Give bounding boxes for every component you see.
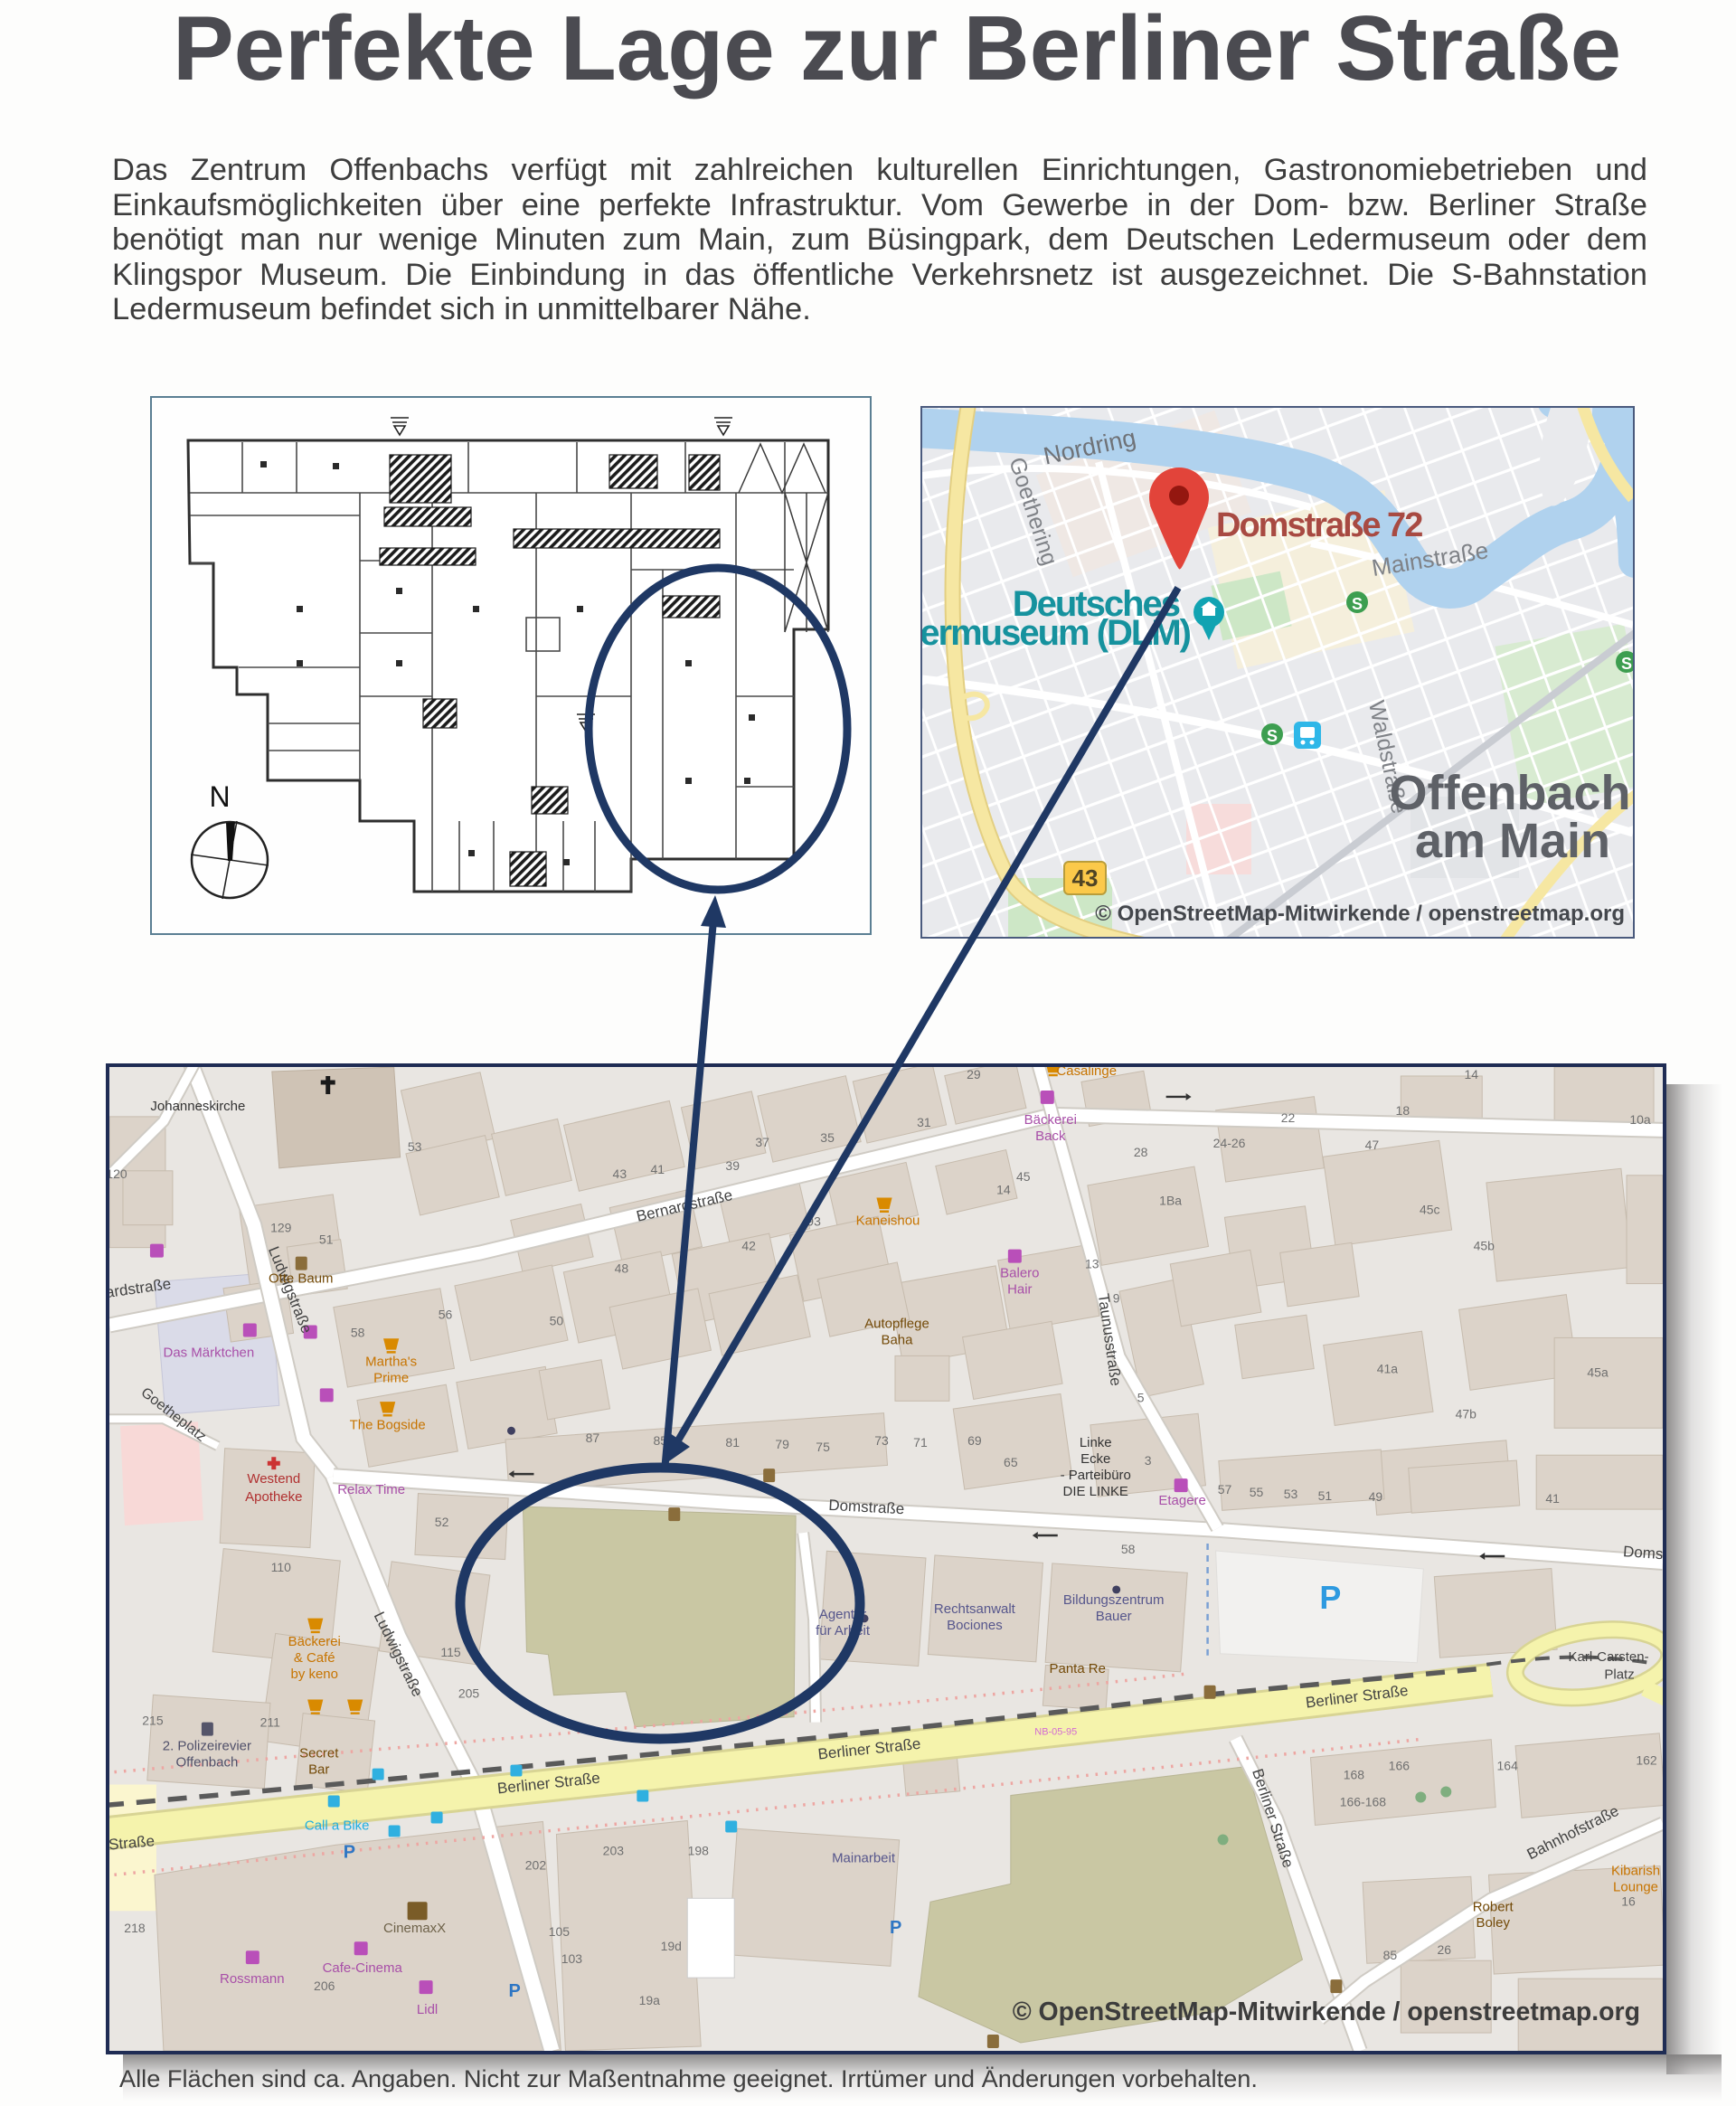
svg-text:39: 39 (725, 1158, 740, 1173)
svg-text:53: 53 (408, 1139, 422, 1154)
svg-text:Back: Back (1035, 1129, 1066, 1144)
svg-text:Offenbach: Offenbach (175, 1755, 238, 1771)
svg-text:DIE LINKE: DIE LINKE (1063, 1484, 1128, 1499)
svg-text:Agentur: Agentur (819, 1607, 866, 1622)
svg-text:57: 57 (1218, 1482, 1232, 1497)
svg-text:Secret: Secret (299, 1746, 339, 1761)
svg-text:CinemaxX: CinemaxX (383, 1921, 446, 1936)
svg-text:22: 22 (1281, 1110, 1296, 1125)
svg-text:14: 14 (1464, 1067, 1478, 1081)
svg-text:Mainarbeit: Mainarbeit (832, 1850, 896, 1865)
svg-text:58: 58 (1121, 1542, 1136, 1556)
svg-text:© OpenStreetMap-Mitwirkende /: © OpenStreetMap-Mitwirkende / openstreet… (1095, 902, 1625, 926)
svg-text:5: 5 (1137, 1390, 1145, 1404)
svg-text:13: 13 (1085, 1257, 1099, 1271)
svg-text:162: 162 (1636, 1753, 1657, 1768)
svg-text:P: P (508, 1981, 520, 2001)
svg-text:S: S (1621, 655, 1632, 673)
svg-text:Kaneishou: Kaneishou (856, 1214, 920, 1229)
svg-text:3: 3 (1145, 1453, 1152, 1468)
svg-text:Das Märktchen: Das Märktchen (164, 1345, 255, 1360)
svg-text:85: 85 (1383, 1948, 1398, 1962)
svg-text:P: P (344, 1842, 355, 1862)
svg-text:Cafe-Cinema: Cafe-Cinema (323, 1960, 403, 1976)
svg-text:NB-05-95: NB-05-95 (1034, 1727, 1077, 1738)
svg-text:79: 79 (775, 1437, 789, 1451)
svg-text:Panta Re: Panta Re (1050, 1661, 1106, 1676)
svg-text:205: 205 (458, 1686, 480, 1701)
svg-text:2. Polizeirevier: 2. Polizeirevier (163, 1739, 251, 1754)
svg-text:164: 164 (1497, 1759, 1519, 1773)
svg-text:198: 198 (688, 1843, 710, 1857)
svg-text:am Main: am Main (1415, 814, 1610, 868)
svg-text:Ecke: Ecke (1080, 1451, 1110, 1467)
svg-text:by keno: by keno (291, 1667, 338, 1682)
svg-text:Linke: Linke (1080, 1435, 1112, 1450)
svg-text:Domstr: Domstr (1622, 1543, 1663, 1563)
svg-text:56: 56 (439, 1307, 453, 1321)
svg-text:52: 52 (435, 1515, 449, 1529)
svg-text:35: 35 (820, 1130, 835, 1145)
svg-text:Bildungszentrum: Bildungszentrum (1063, 1592, 1165, 1608)
svg-text:31: 31 (917, 1115, 931, 1129)
svg-text:45b: 45b (1474, 1239, 1495, 1253)
svg-text:69: 69 (967, 1433, 982, 1448)
svg-text:Martha's: Martha's (365, 1354, 417, 1369)
svg-text:37: 37 (755, 1135, 769, 1149)
svg-text:Relax Time: Relax Time (337, 1482, 405, 1497)
svg-text:45: 45 (1016, 1169, 1031, 1184)
svg-text:115: 115 (440, 1645, 461, 1659)
svg-text:166-168: 166-168 (1340, 1795, 1387, 1809)
svg-text:Autopflege: Autopflege (864, 1316, 929, 1331)
svg-text:103: 103 (561, 1951, 583, 1966)
svg-text:71: 71 (913, 1435, 928, 1450)
svg-text:Johanneskirche: Johanneskirche (150, 1099, 245, 1114)
svg-text:Bar: Bar (308, 1762, 329, 1778)
svg-text:202: 202 (525, 1857, 547, 1872)
svg-text:Casalinge: Casalinge (1056, 1067, 1117, 1079)
svg-text:14: 14 (996, 1183, 1011, 1197)
svg-text:48: 48 (615, 1261, 629, 1276)
svg-text:P: P (890, 1918, 901, 1938)
svg-text:S: S (1267, 727, 1278, 745)
svg-text:Boley: Boley (1476, 1915, 1510, 1931)
svg-text:24-26: 24-26 (1213, 1136, 1246, 1150)
svg-text:Ledermuseum (DLM): Ledermuseum (DLM) (922, 613, 1191, 653)
svg-text:Robert: Robert (1473, 1899, 1514, 1914)
svg-text:29: 29 (967, 1067, 981, 1081)
svg-text:50: 50 (550, 1313, 564, 1327)
svg-text:19d: 19d (661, 1939, 682, 1953)
svg-text:Offenbach: Offenbach (1389, 766, 1630, 820)
svg-text:für Arbeit: für Arbeit (816, 1623, 871, 1639)
svg-text:206: 206 (314, 1979, 335, 1993)
svg-text:41: 41 (1545, 1491, 1560, 1506)
svg-text:Karl-Carsten-: Karl-Carsten- (1569, 1649, 1649, 1665)
svg-text:51: 51 (319, 1232, 334, 1247)
svg-text:65: 65 (1004, 1455, 1018, 1469)
svg-text:Platz: Platz (1604, 1667, 1634, 1683)
svg-text:75: 75 (816, 1440, 830, 1454)
svg-text:S: S (1352, 595, 1363, 613)
svg-text:49: 49 (1369, 1489, 1383, 1504)
svg-text:43: 43 (613, 1166, 627, 1181)
svg-text:218: 218 (124, 1921, 146, 1935)
svg-text:10a: 10a (1629, 1112, 1651, 1127)
svg-text:47b: 47b (1456, 1406, 1477, 1421)
svg-text:1Ba: 1Ba (1159, 1194, 1182, 1208)
svg-text:Etagere: Etagere (1158, 1493, 1205, 1508)
svg-text:43: 43 (1072, 864, 1099, 892)
svg-text:85: 85 (654, 1433, 668, 1448)
svg-text:215: 215 (142, 1714, 164, 1728)
svg-text:Hair: Hair (1007, 1282, 1032, 1298)
svg-text:168: 168 (1344, 1768, 1365, 1782)
svg-text:P: P (1319, 1579, 1341, 1616)
svg-text:N: N (209, 780, 230, 813)
svg-text:Westend: Westend (247, 1471, 300, 1487)
svg-text:Bäckerei: Bäckerei (1024, 1112, 1077, 1128)
svg-text:Lidl: Lidl (417, 2002, 438, 2017)
svg-text:28: 28 (1134, 1145, 1148, 1159)
svg-text:The Bogside: The Bogside (350, 1417, 426, 1432)
svg-text:211: 211 (260, 1715, 281, 1730)
svg-text:Bociones: Bociones (947, 1618, 1003, 1633)
svg-text:Lounge: Lounge (1613, 1879, 1658, 1894)
svg-text:Apotheke: Apotheke (245, 1489, 302, 1505)
svg-text:Prime: Prime (373, 1370, 409, 1385)
svg-text:73: 73 (874, 1433, 889, 1448)
svg-text:Kibarish: Kibarish (1611, 1863, 1660, 1878)
svg-text:Rechtsanwalt: Rechtsanwalt (934, 1601, 1016, 1617)
svg-text:- Parteibüro: - Parteibüro (1061, 1468, 1131, 1483)
svg-text:42: 42 (741, 1239, 756, 1253)
svg-text:55: 55 (1250, 1485, 1264, 1499)
svg-text:166: 166 (1389, 1759, 1410, 1773)
svg-text:Balero: Balero (1000, 1266, 1039, 1281)
svg-text:18: 18 (1396, 1103, 1410, 1118)
svg-text:41: 41 (651, 1162, 665, 1176)
svg-text:19a: 19a (639, 1993, 661, 2007)
svg-text:Baha: Baha (881, 1332, 913, 1347)
svg-text:53: 53 (1284, 1487, 1298, 1501)
svg-text:Bäckerei: Bäckerei (288, 1634, 341, 1649)
svg-text:129: 129 (270, 1221, 292, 1235)
svg-text:16: 16 (1621, 1894, 1636, 1908)
svg-text:41a: 41a (1377, 1361, 1399, 1375)
svg-text:26: 26 (1438, 1942, 1452, 1957)
svg-text:Bauer: Bauer (1096, 1609, 1132, 1624)
svg-text:81: 81 (725, 1435, 740, 1450)
svg-text:45a: 45a (1587, 1365, 1609, 1379)
svg-text:203: 203 (603, 1843, 625, 1857)
svg-text:Rossmann: Rossmann (220, 1971, 285, 1987)
svg-text:58: 58 (351, 1325, 365, 1339)
svg-text:Domstraße 72: Domstraße 72 (1216, 506, 1422, 544)
svg-text:51: 51 (1318, 1488, 1333, 1503)
svg-text:110: 110 (271, 1560, 292, 1574)
svg-text:93: 93 (807, 1214, 821, 1229)
svg-text:© OpenStreetMap-Mitwirkende /: © OpenStreetMap-Mitwirkende / openstreet… (1013, 1997, 1640, 2026)
svg-text:105: 105 (549, 1924, 571, 1939)
svg-text:Call a Bike: Call a Bike (305, 1818, 370, 1833)
svg-text:47: 47 (1365, 1138, 1380, 1152)
svg-text:120: 120 (109, 1166, 127, 1181)
svg-text:87: 87 (586, 1431, 600, 1445)
svg-text:9: 9 (1113, 1291, 1120, 1306)
svg-text:Otte Baum: Otte Baum (269, 1271, 334, 1287)
svg-text:& Café: & Café (294, 1650, 335, 1666)
svg-text:45c: 45c (1420, 1203, 1440, 1217)
